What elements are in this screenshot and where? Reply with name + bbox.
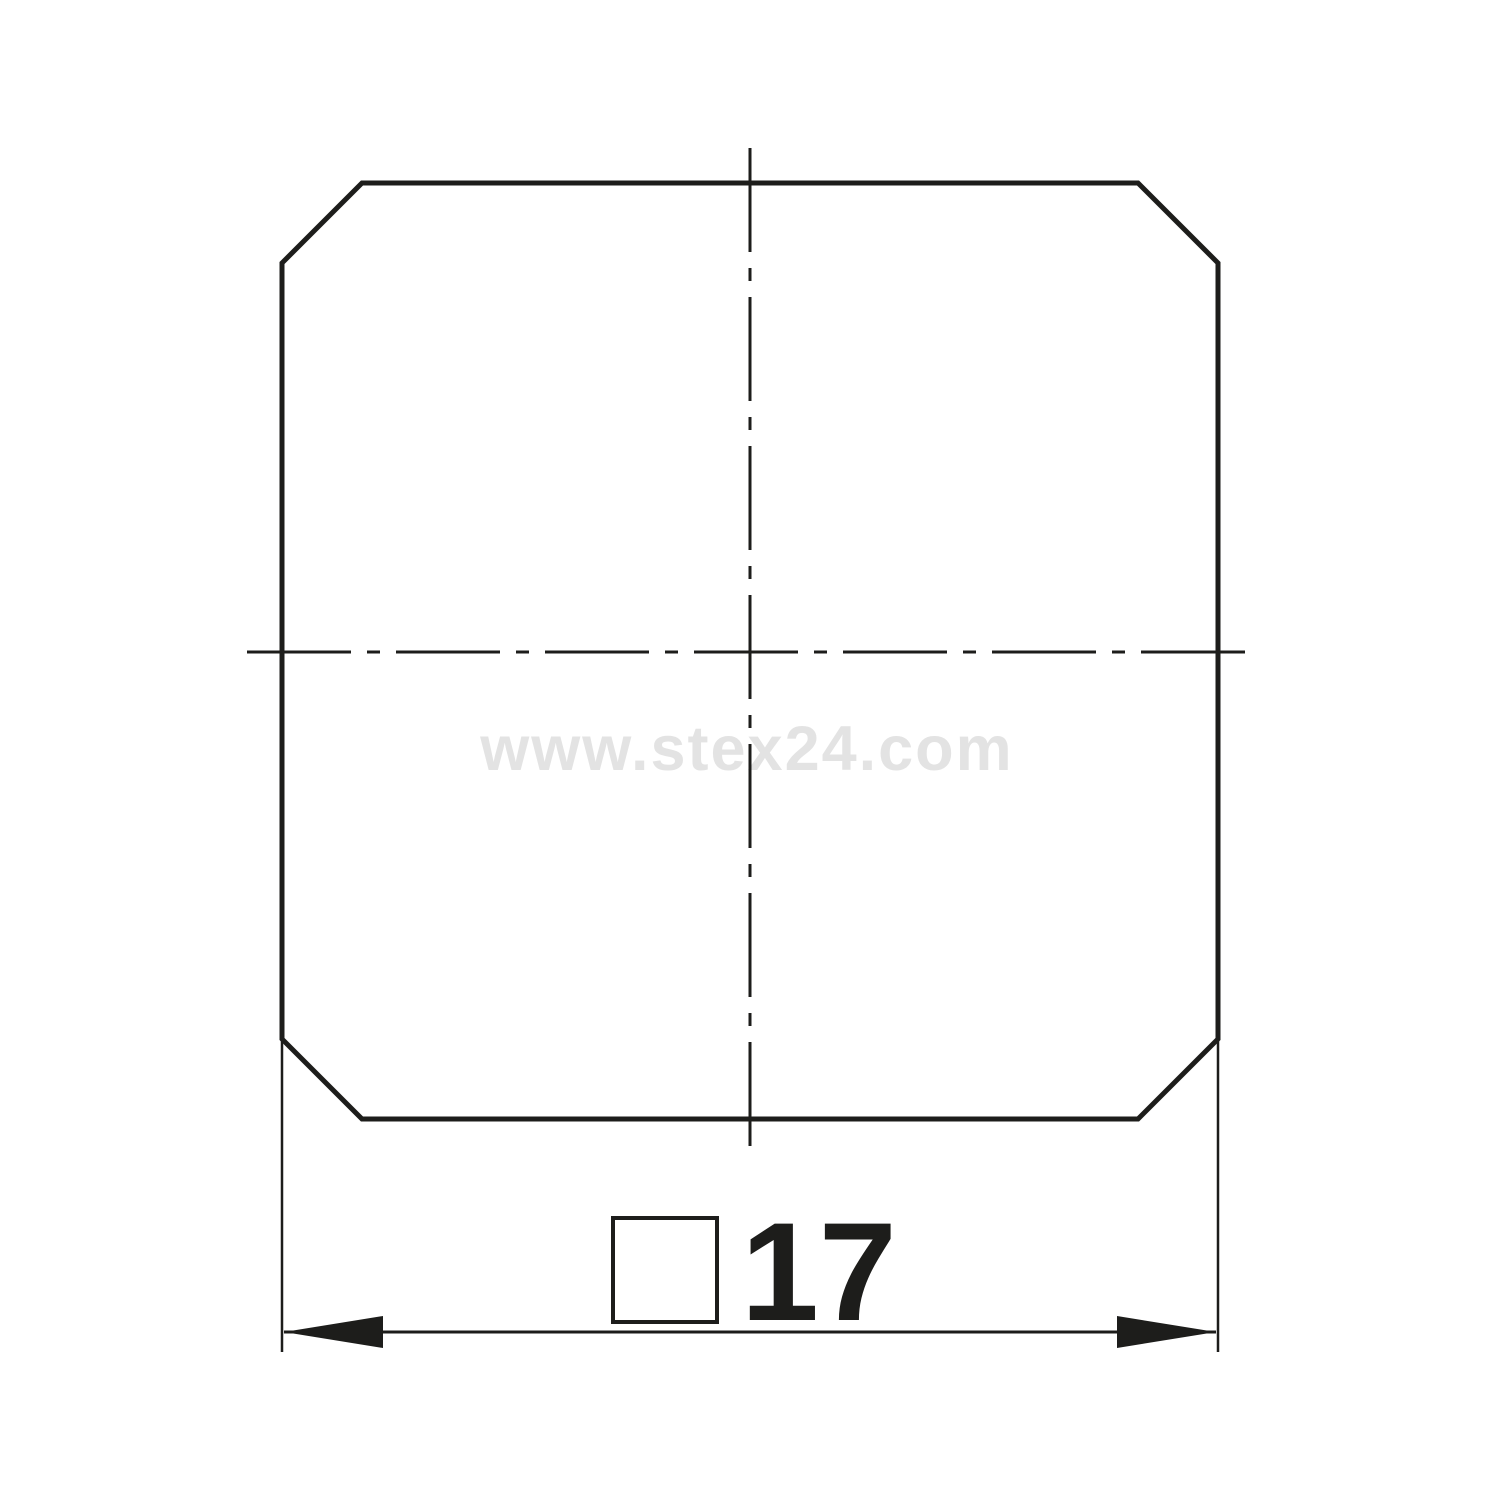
dimension-arrow-left-icon bbox=[284, 1316, 383, 1348]
drawing-canvas: www.stex24.com 17 bbox=[0, 0, 1500, 1500]
dimension-value: 17 bbox=[741, 1193, 897, 1350]
dimension-arrow-right-icon bbox=[1117, 1316, 1216, 1348]
square-profile-icon bbox=[613, 1218, 717, 1322]
watermark-text: www.stex24.com bbox=[479, 714, 1013, 784]
technical-drawing: www.stex24.com 17 bbox=[0, 0, 1500, 1500]
